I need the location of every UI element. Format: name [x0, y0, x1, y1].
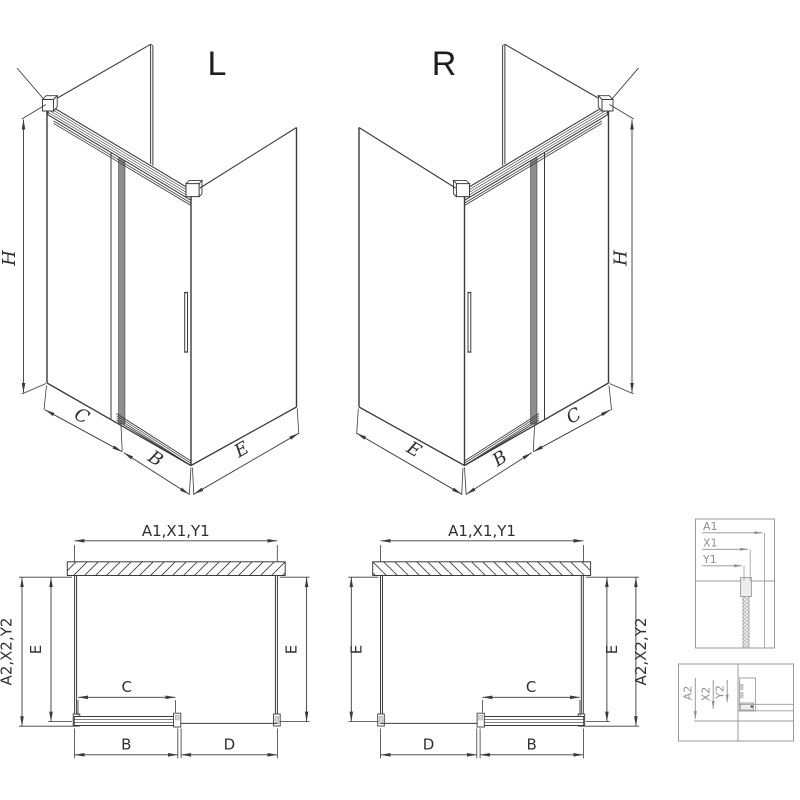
plan-geometry-left — [19, 541, 310, 759]
iso-view-right: R H C B E — [357, 44, 639, 495]
shower-enclosure-drawing: L H C B E R H C B E A1,X1,Y1 A2,X2,Y2 E … — [0, 0, 800, 800]
plan-left-depth-label: A2,X2,Y2 — [0, 618, 16, 686]
plan-right-door-glass-label: C — [526, 678, 536, 696]
plan-left-door-glass-label: C — [122, 678, 132, 696]
plan-right-side-right-label: E — [603, 645, 621, 654]
detail-wall-label-y1: Y1 — [702, 553, 717, 566]
plan-right-side-left-label: E — [347, 645, 365, 654]
detail-view-floor-profile: A2 X2 Y2 — [679, 664, 794, 741]
plan-view-left: A1,X1,Y1 A2,X2,Y2 E E C B D — [0, 522, 310, 758]
detail-wall-label-x1: X1 — [703, 537, 718, 550]
iso-view-left: L H C B E — [0, 44, 299, 495]
plan-left-width-label: A1,X1,Y1 — [142, 522, 210, 540]
plan-left-fixed-panel-label: D — [224, 736, 236, 754]
detail-wall-label-a1: A1 — [703, 520, 718, 533]
detail-view-wall-profile: A1 X1 Y1 — [696, 519, 775, 648]
plan-left-side-right-label: E — [283, 645, 301, 654]
plan-right-fixed-panel-label: D — [423, 736, 435, 754]
plan-view-right: A1,X1,Y1 A2,X2,Y2 E E C B D — [347, 522, 650, 758]
dim-label-side-left: E — [230, 437, 253, 462]
plan-right-door-rail-label: B — [526, 736, 536, 754]
dim-label-side-right: E — [402, 437, 425, 462]
view-label-left: L — [208, 45, 227, 83]
iso-geometry-right-mirrored — [357, 44, 639, 495]
technical-drawing-page: L H C B E R H C B E A1,X1,Y1 A2,X2,Y2 E … — [0, 0, 800, 800]
view-label-right: R — [432, 45, 457, 83]
plan-left-door-rail-label: B — [121, 736, 131, 754]
plan-left-side-left-label: E — [27, 645, 45, 654]
detail-floor-label-x2: X2 — [700, 687, 713, 702]
plan-right-depth-label: A2,X2,Y2 — [632, 618, 650, 686]
dim-label-height-left: H — [0, 250, 20, 267]
plan-geometry-right-mirrored — [348, 541, 639, 759]
plan-right-width-label: A1,X1,Y1 — [448, 522, 516, 540]
iso-geometry-left — [17, 44, 299, 495]
detail-floor-label-y2: Y2 — [714, 685, 727, 700]
detail-floor-label-a2: A2 — [682, 686, 695, 701]
dim-label-height-right: H — [611, 250, 632, 267]
